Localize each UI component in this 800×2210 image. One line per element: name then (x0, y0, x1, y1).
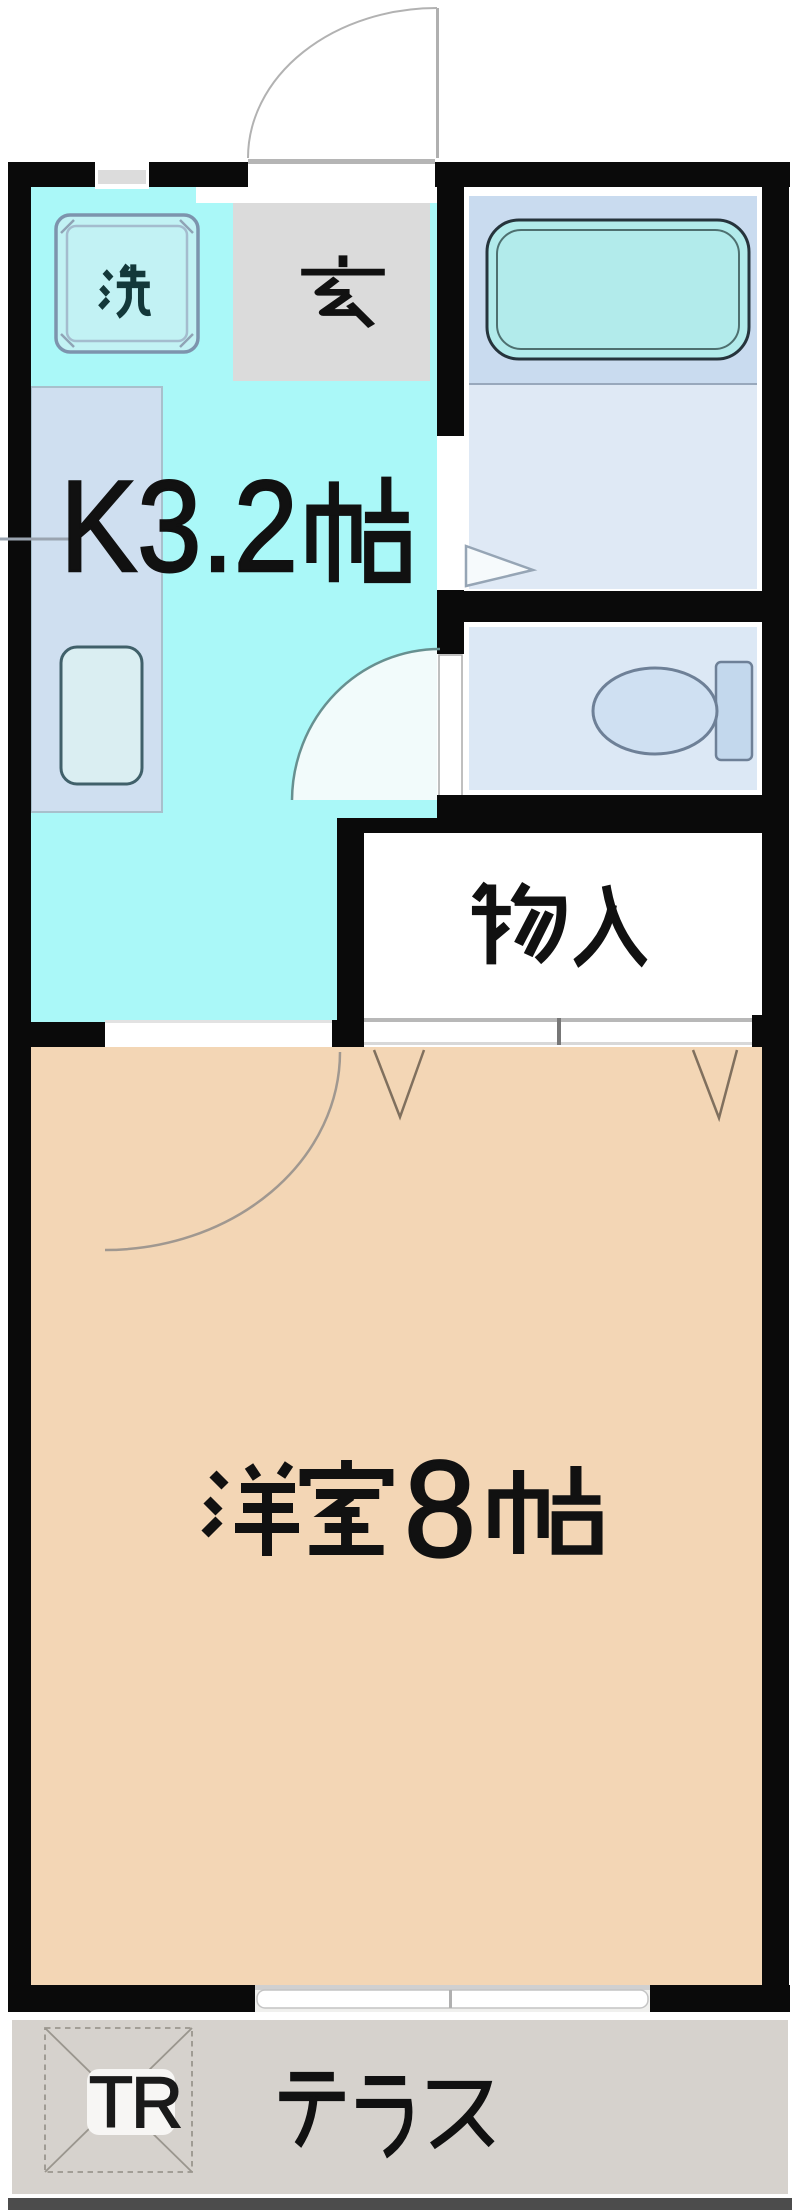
svg-text:TR: TR (89, 2063, 181, 2143)
svg-text:8: 8 (404, 1433, 476, 1586)
svg-text:K3.2: K3.2 (60, 453, 298, 599)
